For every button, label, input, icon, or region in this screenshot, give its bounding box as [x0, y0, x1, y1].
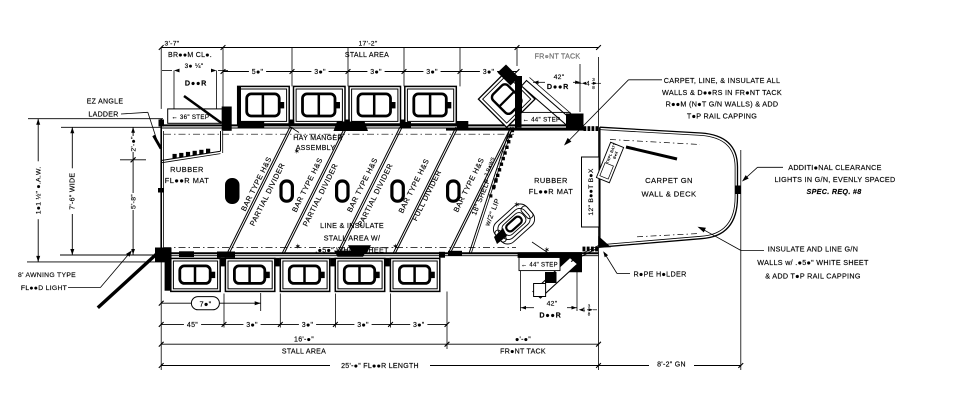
svg-text:FL●●D LIGHT: FL●●D LIGHT — [21, 285, 67, 292]
svg-text:3●": 3●" — [483, 69, 495, 76]
svg-text:3●": 3●" — [357, 322, 369, 329]
svg-text:1●1 ½" ●.A.W.: 1●1 ½" ●.A.W. — [34, 166, 42, 214]
svg-text:HAY MANGER: HAY MANGER — [293, 135, 342, 142]
svg-text:← 44" STEP: ← 44" STEP — [523, 117, 561, 124]
svg-text:45": 45" — [187, 322, 198, 329]
svg-text:WALL & DECK: WALL & DECK — [642, 189, 697, 198]
svg-text:3●": 3●" — [246, 322, 258, 329]
svg-text:8'-2" GN: 8'-2" GN — [657, 362, 686, 369]
svg-text:42": 42" — [547, 300, 558, 307]
svg-text:3'-7": 3'-7" — [164, 41, 179, 48]
svg-text:← 44" STEP: ← 44" STEP — [521, 263, 558, 269]
svg-text:T●P RAIL CAPPING: T●P RAIL CAPPING — [687, 112, 757, 121]
svg-text:7●": 7●" — [199, 299, 211, 308]
svg-text:5'-8": 5'-8" — [130, 194, 137, 209]
svg-text:R●●M (N●T G/N WALLS) & ADD: R●●M (N●T G/N WALLS) & ADD — [666, 100, 779, 109]
svg-text:8: 8 — [588, 311, 591, 316]
svg-text:STALL AREA W/: STALL AREA W/ — [324, 233, 381, 242]
svg-text:D●●R: D●●R — [185, 79, 207, 88]
svg-text:8: 8 — [592, 85, 595, 90]
svg-text:ADDITI●NAL CLEARANCE: ADDITI●NAL CLEARANCE — [788, 163, 882, 172]
svg-text:3: 3 — [588, 304, 591, 309]
svg-text:3●": 3●" — [413, 322, 425, 329]
svg-text:25'-●" FL●●R LENGTH: 25'-●" FL●●R LENGTH — [341, 363, 419, 370]
svg-text:17'-2": 17'-2" — [358, 40, 377, 47]
svg-text:FR●NT TACK: FR●NT TACK — [500, 348, 546, 355]
svg-text:EZ ANGLE: EZ ANGLE — [87, 99, 124, 106]
svg-text:LADDER: LADDER — [88, 111, 118, 118]
svg-text:D●●R: D●●R — [539, 310, 561, 319]
svg-text:●'-●": ●'-●" — [515, 336, 531, 343]
svg-text:3●": 3●" — [314, 69, 326, 76]
svg-text:LIGHTS IN G/N, EVENLY SPACED: LIGHTS IN G/N, EVENLY SPACED — [774, 175, 895, 184]
svg-text:CARPET GN: CARPET GN — [645, 176, 693, 185]
svg-text:FR●NT TACK: FR●NT TACK — [535, 54, 581, 61]
svg-text:SPEC. REQ. #8: SPEC. REQ. #8 — [806, 187, 861, 196]
svg-text:3●": 3●" — [302, 322, 314, 329]
svg-text:✶: ✶ — [514, 201, 520, 209]
svg-text:2'-●": 2'-●" — [130, 136, 137, 152]
svg-text:STALL AREA: STALL AREA — [345, 52, 389, 59]
svg-text:RUBBER: RUBBER — [170, 165, 204, 174]
svg-text:RUBBER: RUBBER — [534, 176, 568, 185]
svg-text:8' AWNING TYPE: 8' AWNING TYPE — [18, 272, 76, 279]
svg-text:16'-●": 16'-●" — [294, 336, 314, 343]
svg-text:42": 42" — [554, 74, 565, 81]
svg-text:BR●●M CL●.: BR●●M CL●. — [168, 52, 212, 59]
svg-text:3● ¼": 3● ¼" — [185, 63, 204, 70]
svg-text:4: 4 — [586, 80, 590, 87]
svg-text:FL●●R MAT: FL●●R MAT — [165, 176, 210, 185]
svg-text:12" B●●T B●X: 12" B●●T B●X — [588, 168, 595, 215]
svg-text:.●5●" WHITE SHEET: .●5●" WHITE SHEET — [315, 246, 389, 255]
svg-text:7'-6" WIDE: 7'-6" WIDE — [70, 173, 77, 210]
svg-text:✶: ✶ — [295, 243, 301, 251]
svg-text:5●": 5●" — [252, 69, 264, 76]
svg-text:3●": 3●" — [426, 69, 438, 76]
svg-text:3: 3 — [592, 77, 595, 82]
svg-text:& ADD T●P RAIL CAPPING: & ADD T●P RAIL CAPPING — [765, 272, 861, 281]
svg-text:D●●R: D●●R — [547, 82, 569, 91]
svg-text:CARPET, LINE, & INSULATE ALL: CARPET, LINE, & INSULATE ALL — [664, 76, 781, 85]
svg-text:WALLS & D●●RS IN FR●NT TACK: WALLS & D●●RS IN FR●NT TACK — [662, 88, 782, 97]
svg-text:R●PE H●LDER: R●PE H●LDER — [633, 270, 686, 279]
svg-text:3●": 3●" — [370, 69, 382, 76]
svg-text:LINE & INSULATE: LINE & INSULATE — [320, 221, 384, 230]
svg-text:ASSEMBLY: ASSEMBLY — [296, 145, 336, 152]
svg-text:STALL AREA: STALL AREA — [282, 348, 326, 355]
svg-text:FL●●R MAT: FL●●R MAT — [529, 187, 574, 196]
svg-text:INSULATE AND LINE G/N: INSULATE AND LINE G/N — [768, 245, 858, 254]
svg-text:WALLS w/ .●5●" WHITE SHEET: WALLS w/ .●5●" WHITE SHEET — [757, 258, 869, 267]
